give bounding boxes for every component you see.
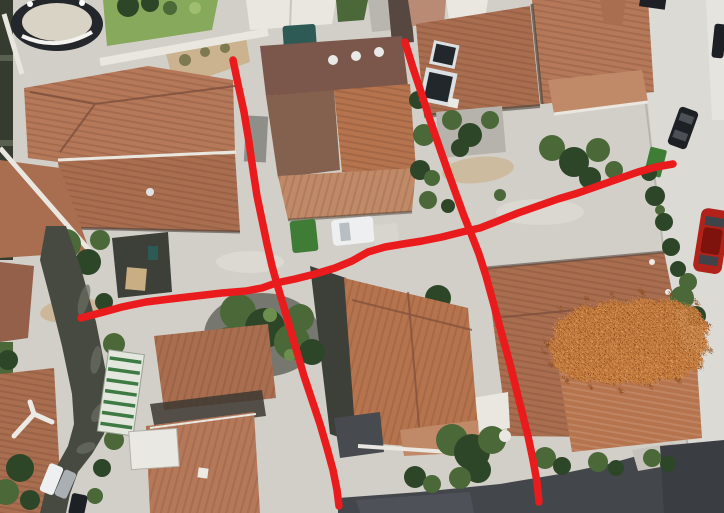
green-dumpster: [289, 219, 318, 254]
yard-bin: [148, 246, 158, 260]
roof-bit-street-edge: [600, 0, 626, 26]
white-car-courtyard: [331, 216, 375, 246]
house-top-right-1: [416, 6, 540, 116]
white-roof-ridge: [290, 0, 291, 27]
white-building: [129, 428, 180, 469]
band-dark-right: [660, 440, 724, 513]
house-center: [260, 36, 416, 220]
dark-annex: [334, 412, 384, 458]
aerial-photo: [0, 0, 724, 513]
gray-roof-strip: [368, 0, 392, 32]
green-patch-top: [336, 0, 368, 22]
satellite-dish: [146, 188, 154, 196]
pallet-stack: [125, 267, 147, 291]
house-top-right-2: [532, 0, 654, 114]
